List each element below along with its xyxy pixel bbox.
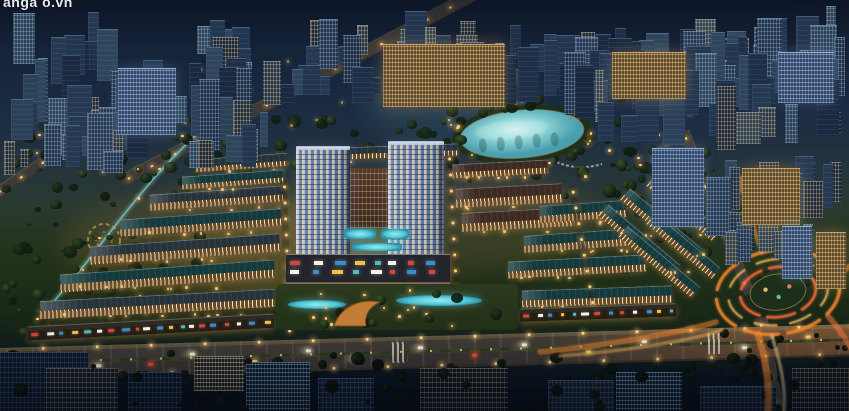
- city-building: [785, 104, 797, 142]
- landmark-building: [778, 52, 834, 103]
- landmark-building: [118, 68, 176, 135]
- city-building: [319, 19, 339, 69]
- traffic-light-trail: [540, 322, 716, 352]
- city-building: [280, 84, 294, 103]
- city-building: [320, 76, 330, 95]
- traffic-light-trail: [560, 330, 722, 356]
- city-building: [736, 222, 751, 262]
- city-building: [803, 181, 822, 218]
- city-building: [103, 151, 123, 173]
- city-building: [263, 61, 281, 105]
- traffic-light-trail: [772, 336, 784, 411]
- city-building: [198, 140, 212, 167]
- traffic-light-trail: [758, 334, 769, 411]
- city-building: [20, 149, 29, 167]
- city-building: [260, 112, 268, 147]
- city-building: [199, 79, 220, 150]
- city-building: [544, 40, 557, 95]
- traffic-light-trail: [828, 316, 849, 346]
- landmark-building: [742, 168, 800, 225]
- city-building: [725, 232, 738, 264]
- city-building: [518, 47, 539, 102]
- landmark-building: [782, 226, 812, 279]
- city-building: [66, 125, 80, 168]
- city-building: [736, 112, 761, 144]
- city-building: [242, 124, 257, 167]
- landmark-building: [612, 52, 686, 99]
- landmark-building: [816, 232, 846, 289]
- landmark-building: [383, 44, 505, 107]
- watermark-text: anga o.vn: [3, 0, 73, 10]
- city-building: [823, 164, 833, 208]
- city-building: [13, 13, 35, 63]
- city-building: [598, 102, 614, 142]
- aerial-night-masterplan-render: anga o.vn: [0, 0, 849, 411]
- city-building: [44, 124, 61, 166]
- landmark-building: [652, 148, 704, 227]
- city-building: [575, 65, 593, 118]
- city-building: [621, 115, 638, 142]
- city-building: [717, 86, 736, 149]
- city-building: [352, 67, 375, 103]
- city-building: [11, 99, 33, 140]
- city-building: [4, 141, 15, 176]
- city-building: [706, 177, 731, 235]
